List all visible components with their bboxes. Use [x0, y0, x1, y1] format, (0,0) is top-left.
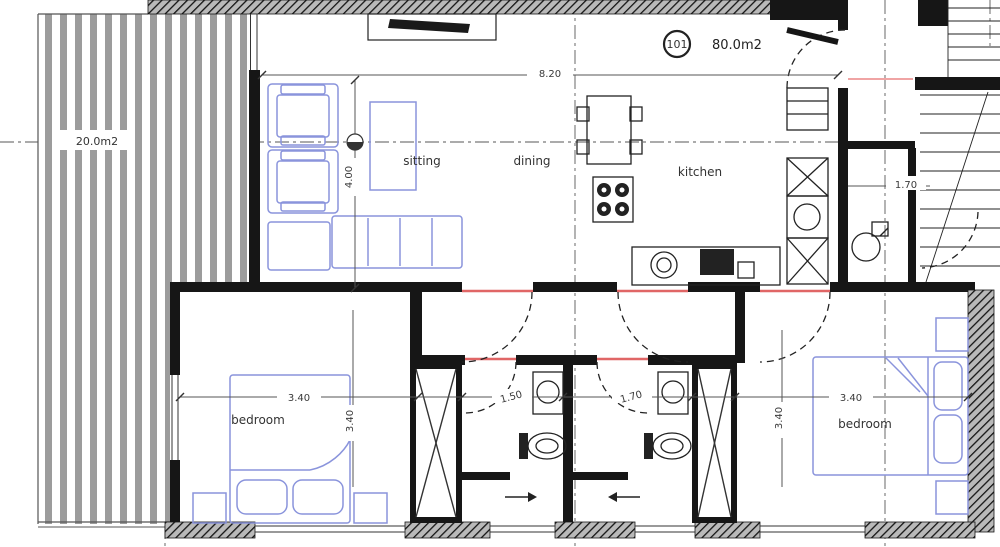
wall-divider: [533, 282, 617, 292]
wall-bedroom-left: [170, 292, 180, 375]
floor-plan: 20.0m2: [0, 0, 1000, 547]
walls: [148, 0, 1000, 538]
wall-wc: [908, 148, 916, 283]
service-shafts: [413, 366, 734, 520]
sofa: [268, 216, 462, 270]
flow-arrow-right-icon: [505, 492, 537, 502]
wall-hall-right: [735, 292, 745, 363]
wall-divider: [170, 282, 462, 292]
kitchen-counter: [632, 247, 780, 285]
floor-plan-drawing: 20.0m2: [0, 0, 1000, 547]
exterior-wall-bottom: [405, 522, 490, 538]
dim-bedroom-right-depth: 3.40: [774, 407, 785, 429]
kitchen-label: kitchen: [678, 165, 722, 179]
tv-unit: [368, 14, 496, 40]
armchair: [268, 150, 338, 213]
dim-living-depth: 4.00: [344, 166, 355, 188]
wall-bath-top: [516, 355, 597, 365]
dim-wc-width: 1.70: [895, 180, 917, 191]
coffee-table: [370, 102, 416, 190]
wall-bath-center: [563, 365, 573, 523]
wall-bath-stub: [462, 472, 510, 480]
kitchen-cabinets: [787, 88, 828, 284]
accessible-wc-icon: [852, 222, 888, 261]
exterior-wall-right: [968, 290, 994, 532]
column: [918, 0, 948, 26]
washbasin-right: [658, 372, 688, 414]
wall-living-left: [249, 70, 260, 290]
wall-bedroom-left: [170, 460, 180, 522]
armchair: [268, 84, 338, 147]
balcony-area-label: 20.0m2: [76, 135, 118, 148]
door-swing-bedroom-right: [760, 292, 830, 362]
door-swing-stair: [922, 212, 978, 268]
door-swing-bedroom-left: [462, 292, 532, 362]
wall-bath-stub: [573, 472, 628, 480]
dim-bedroom-left-depth: 3.40: [345, 410, 356, 432]
wall-hall-left: [410, 292, 422, 363]
flow-arrow-left-icon: [608, 492, 640, 502]
door-swing-bath-left: [465, 362, 516, 413]
balcony-deck: 20.0m2: [38, 14, 250, 527]
windows: [172, 14, 865, 532]
wall-top-solid: [770, 0, 846, 20]
stair-direction-line: [926, 92, 988, 282]
cooktop-unit: [700, 249, 734, 275]
unit-area-label: 80.0m2: [712, 38, 762, 53]
exterior-wall-top: [148, 0, 845, 14]
washbasin-left: [533, 372, 563, 414]
furniture: [193, 14, 968, 523]
wall-stair: [915, 77, 1000, 90]
deck-boards: [38, 14, 250, 290]
unit-tag: 101 80.0m2: [664, 31, 762, 57]
kitchen-fixtures: [577, 88, 828, 285]
wall-divider: [688, 282, 760, 292]
nightstand: [354, 493, 387, 523]
unit-number: 101: [667, 38, 688, 51]
exterior-wall-bottom: [555, 522, 635, 538]
wall-divider: [830, 282, 975, 292]
wall-entry: [838, 0, 848, 30]
sitting-label: sitting: [403, 154, 441, 168]
exterior-wall-bottom: [165, 522, 255, 538]
stair-treads: [920, 0, 1000, 266]
toilet-left: [519, 433, 566, 459]
nightstand: [193, 493, 226, 523]
toilet-right: [644, 433, 691, 459]
nightstand: [936, 318, 968, 351]
wall-entry: [838, 88, 848, 283]
bedroom-left-label: bedroom: [231, 413, 285, 427]
exterior-wall-bottom: [695, 522, 760, 538]
nightstand: [936, 481, 968, 514]
bedroom-right-label: bedroom: [838, 417, 892, 431]
sink-icon: [651, 252, 677, 278]
dim-overall-width: 8.20: [539, 69, 561, 80]
stove: [593, 177, 633, 222]
wall-wc: [848, 141, 915, 149]
dim-bedroom-left-width: 3.40: [288, 393, 310, 404]
deck-boards: [38, 290, 170, 524]
bed-right: [813, 318, 968, 514]
bathroom-fixtures: [505, 372, 691, 502]
exterior-wall-bottom: [865, 522, 975, 538]
grid-marker-fill: [347, 142, 363, 150]
dining-table: [577, 96, 642, 164]
door-swing-hall: [618, 292, 688, 362]
dim-bedroom-right-width: 3.40: [840, 393, 862, 404]
dining-label: dining: [513, 154, 550, 168]
